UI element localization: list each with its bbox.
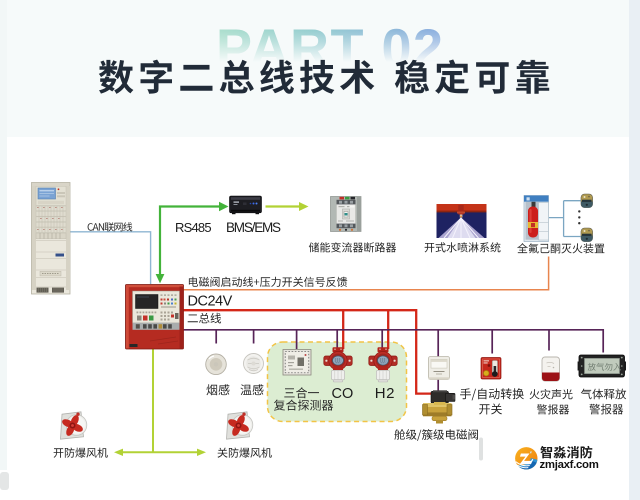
svg-text:BMS/EMS: BMS/EMS <box>226 220 281 235</box>
svg-text:CO: CO <box>332 386 354 402</box>
svg-text:DC24V: DC24V <box>188 294 233 310</box>
svg-text:RS485: RS485 <box>175 220 211 235</box>
svg-text:H2: H2 <box>375 385 395 402</box>
svg-text:zmjaxf.com: zmjaxf.com <box>540 459 599 471</box>
